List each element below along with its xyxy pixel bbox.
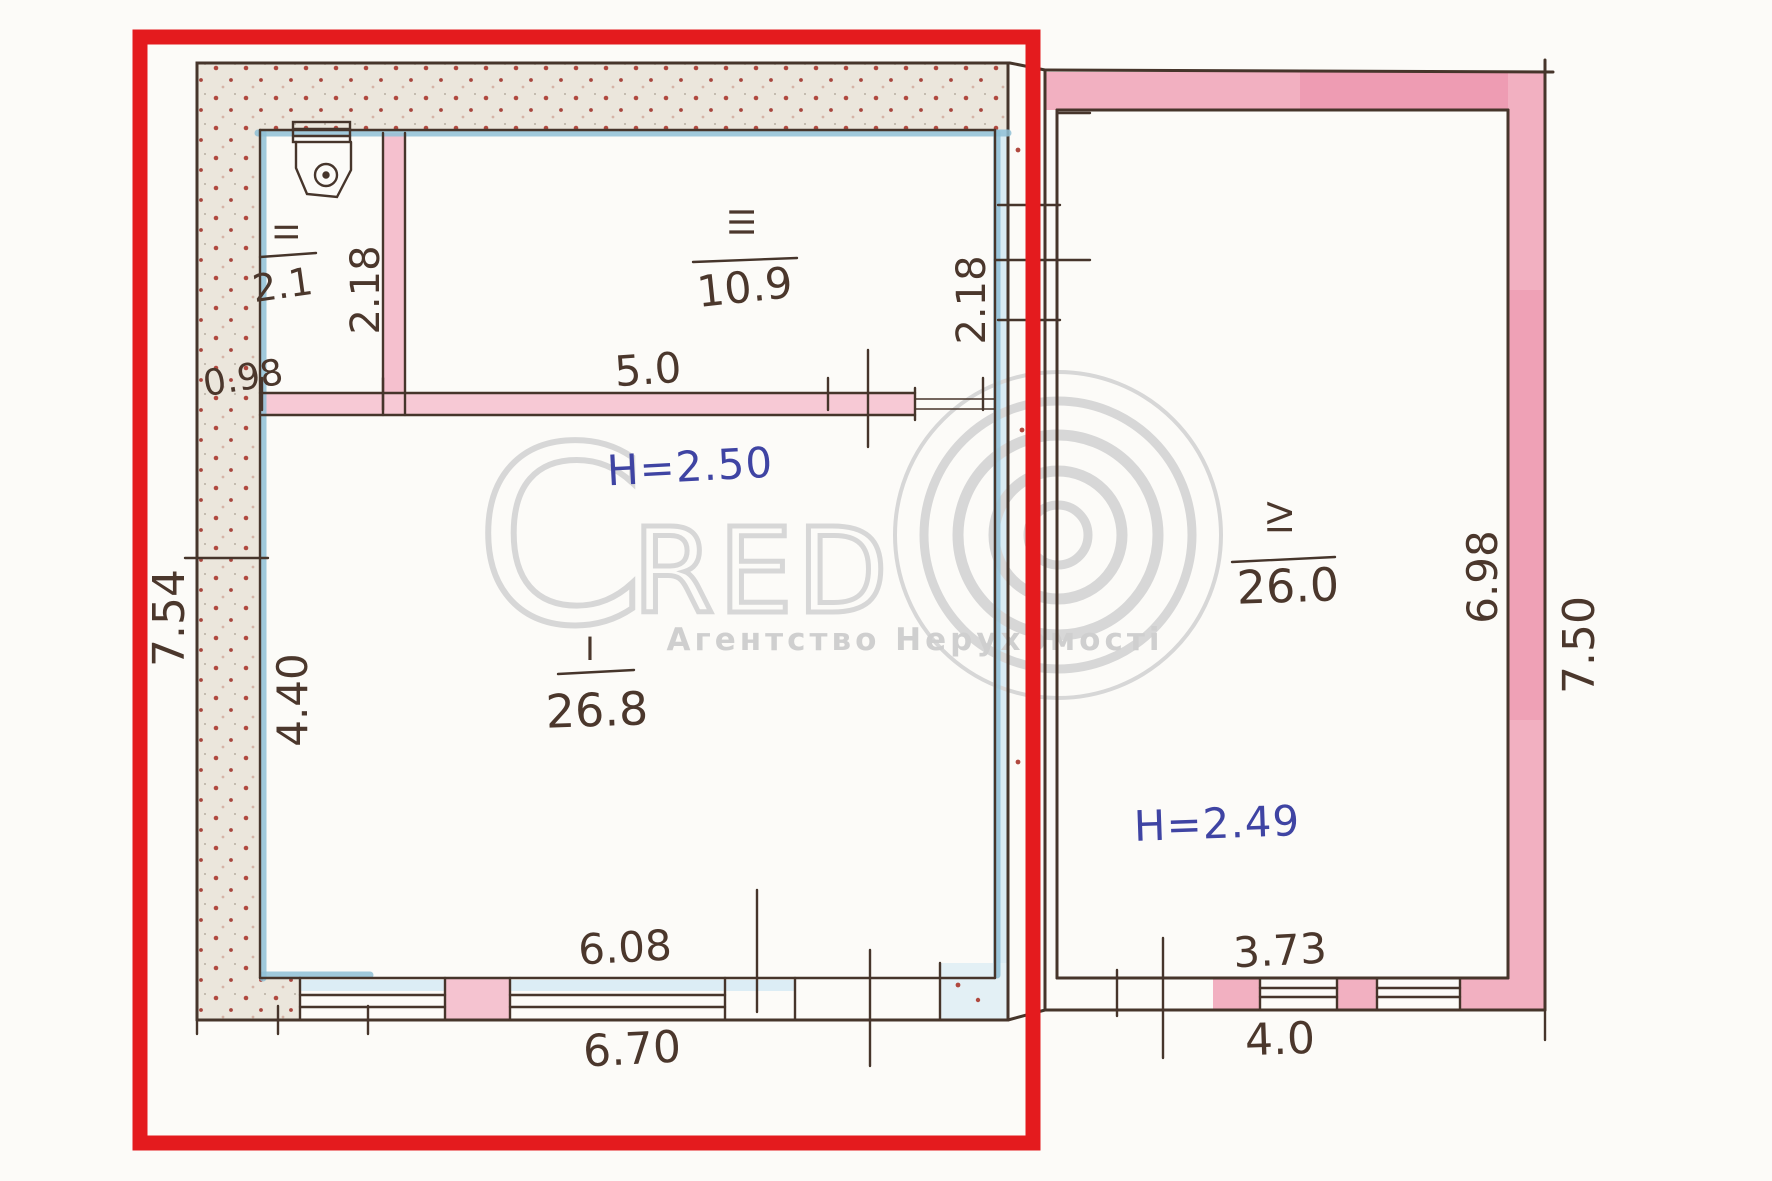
dim-room3-width: 5.0 — [613, 343, 683, 397]
dim-inner-bottom-width: 6.08 — [577, 921, 673, 975]
watermark-letter-c: C — [474, 395, 645, 680]
right-height-note: H=2.49 — [1133, 796, 1301, 851]
svg-text:І: І — [585, 630, 594, 668]
watermark-subtitle: Агентство Нерухомості — [667, 622, 1164, 658]
floor-plan-scan: C RED Агентство Нерухомості — [0, 0, 1772, 1181]
svg-text:2.1: 2.1 — [250, 259, 316, 311]
svg-text:10.9: 10.9 — [695, 258, 795, 318]
dim-bottom-outer-width: 4.0 — [1244, 1013, 1316, 1066]
dim-outer-left-height: 7.54 — [144, 569, 195, 667]
svg-text:ІV: ІV — [1261, 501, 1301, 534]
floor-plan-canvas: C RED Агентство Нерухомості — [0, 0, 1772, 1181]
svg-text:26.8: 26.8 — [545, 681, 649, 739]
svg-text:26.0: 26.0 — [1236, 557, 1340, 615]
watermark-letters-red: RED — [632, 502, 891, 640]
dim-room2-height: 2.18 — [343, 245, 389, 334]
dim-inner-right-height: 6.98 — [1458, 530, 1507, 624]
dim-outer-right-height: 7.50 — [1554, 596, 1605, 694]
svg-text:ІІ: ІІ — [268, 223, 306, 242]
dim-bottom-inner-width: 3.73 — [1232, 924, 1328, 978]
dim-room1-height: 4.40 — [268, 653, 317, 747]
left-height-note: H=2.50 — [606, 438, 775, 496]
dim-room3-height: 2.18 — [949, 255, 995, 344]
dim-outer-bottom-width: 6.70 — [582, 1021, 683, 1077]
svg-text:ІІІ: ІІІ — [723, 207, 763, 237]
